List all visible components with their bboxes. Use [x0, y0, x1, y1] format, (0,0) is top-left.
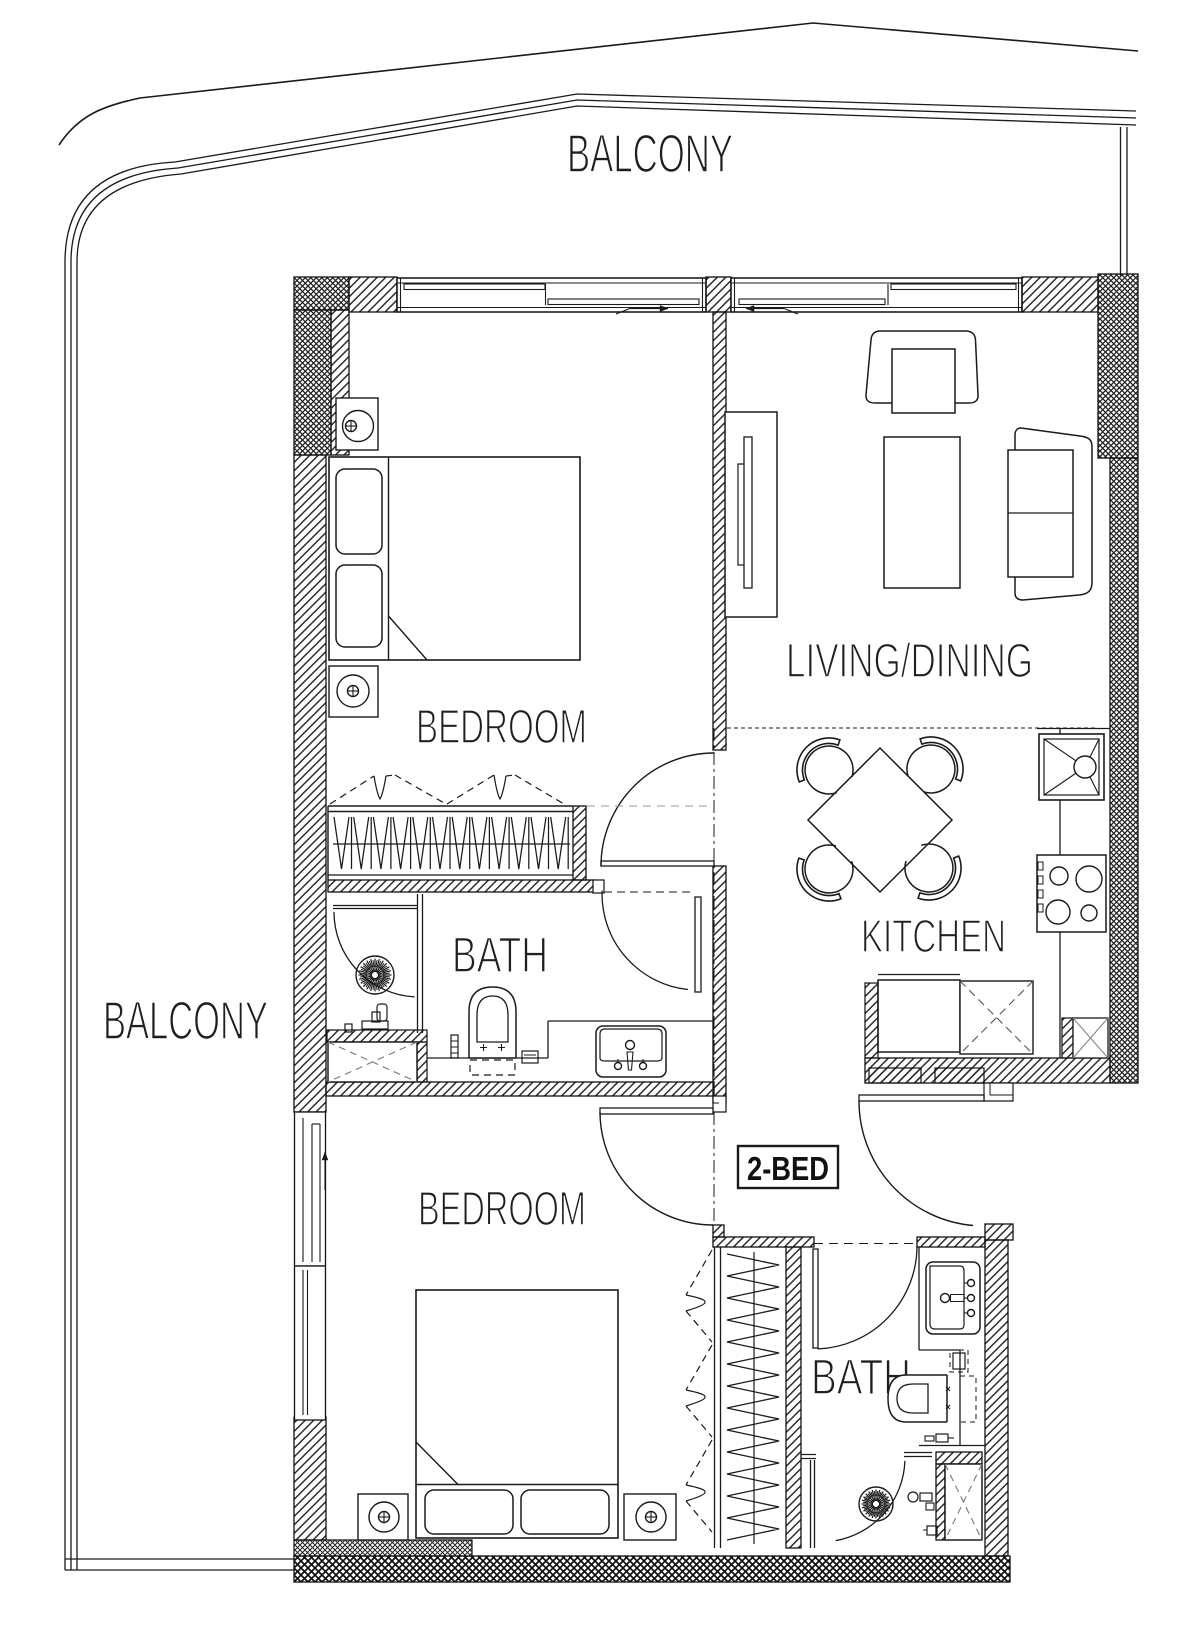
svg-text:BATH: BATH	[452, 927, 548, 983]
svg-text:BEDROOM: BEDROOM	[418, 1183, 586, 1236]
svg-text:2-BED: 2-BED	[747, 1150, 829, 1187]
svg-text:BEDROOM: BEDROOM	[416, 701, 587, 754]
svg-text:BALCONY: BALCONY	[103, 991, 268, 1051]
svg-text:KITCHEN: KITCHEN	[861, 910, 1006, 962]
svg-text:BALCONY: BALCONY	[567, 124, 733, 184]
svg-text:LIVING/DINING: LIVING/DINING	[786, 635, 1033, 688]
